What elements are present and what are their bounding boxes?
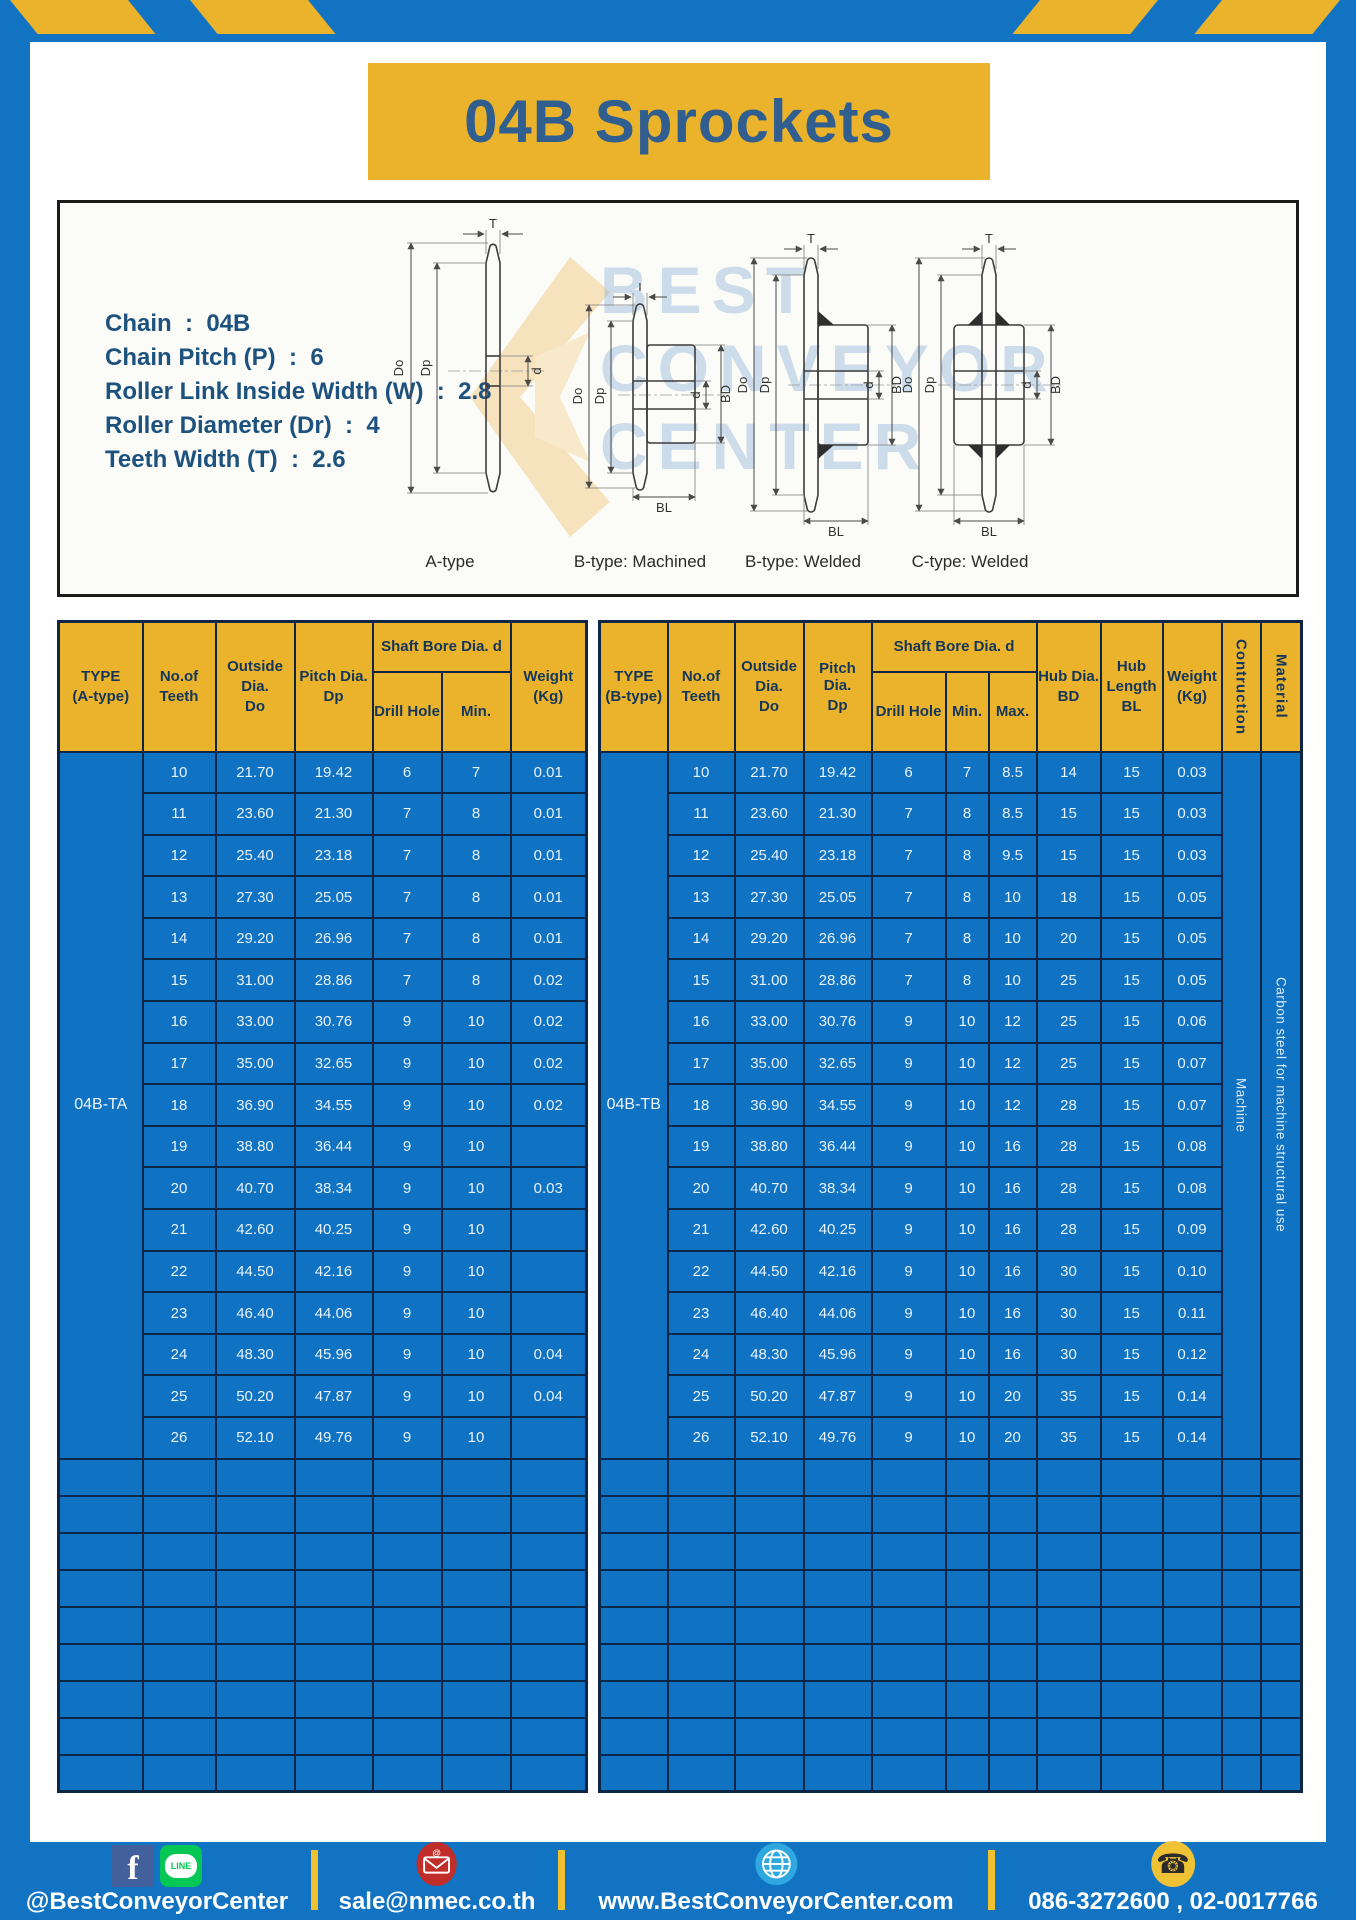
table-cell: 8 [946, 793, 989, 835]
material-value-cell: Carbon steel for machine structural use [1261, 752, 1302, 1459]
table-cell [1261, 1681, 1302, 1718]
table-cell: 9 [872, 1375, 946, 1417]
table-cell: 9 [373, 1001, 442, 1043]
table-cell [295, 1570, 373, 1607]
table-cell [946, 1496, 989, 1533]
table-cell [989, 1718, 1037, 1755]
table-cell: 16 [143, 1001, 216, 1043]
table-cell [1261, 1533, 1302, 1570]
drawing-label-b-machined: B-type: Machined [574, 552, 706, 572]
table-cell: 25.05 [804, 876, 872, 918]
table-cell: 21.30 [804, 793, 872, 835]
table-cell: 10 [442, 1043, 511, 1085]
table-cell: 6 [373, 752, 442, 794]
table-cell [442, 1681, 511, 1718]
table-cell [216, 1718, 295, 1755]
table-cell [1101, 1718, 1163, 1755]
table-cell [511, 1570, 587, 1607]
table-cell [373, 1755, 442, 1792]
table-cell [1261, 1607, 1302, 1644]
empty-row [59, 1644, 587, 1681]
header-shaft-bore: Shaft Bore Dia. d [373, 622, 511, 672]
table-cell: 8 [442, 793, 511, 835]
table-cell: 8.5 [989, 793, 1037, 835]
table-cell [872, 1755, 946, 1792]
table-cell: 0.07 [1163, 1084, 1222, 1126]
sprocket-drawing-a-type: T Do Dp d [393, 218, 563, 518]
table-cell [804, 1644, 872, 1681]
table-cell: 0.03 [1163, 793, 1222, 835]
table-cell: 34.55 [804, 1084, 872, 1126]
table-row: 2346.4044.069101630150.11 [600, 1292, 1302, 1334]
table-cell: 7 [373, 959, 442, 1001]
table-cell: 0.04 [511, 1334, 587, 1376]
table-cell [1222, 1570, 1261, 1607]
header-pitch-dia: Pitch Dia.Dp [804, 622, 872, 752]
table-cell: 36.90 [735, 1084, 804, 1126]
table-cell: 8.5 [989, 752, 1037, 794]
table-cell [989, 1496, 1037, 1533]
table-cell: 10 [946, 1209, 989, 1251]
footer-email: @ sale@nmec.co.th [339, 1841, 536, 1916]
table-cell: 10 [946, 1417, 989, 1459]
svg-text:BL: BL [828, 524, 844, 538]
construction-value-cell: Machine [1222, 752, 1261, 1459]
table-cell: 15 [1101, 1001, 1163, 1043]
header-teeth: No.ofTeeth [668, 622, 735, 752]
table-cell: 30.76 [295, 1001, 373, 1043]
table-cell: 16 [989, 1251, 1037, 1293]
table-cell: 42.16 [295, 1251, 373, 1293]
table-cell: 38.80 [216, 1126, 295, 1168]
table-cell [1261, 1496, 1302, 1533]
table-cell: 35 [1037, 1375, 1101, 1417]
table-cell [442, 1496, 511, 1533]
footer-website-text: www.BestConveyorCenter.com [598, 1888, 953, 1916]
table-cell [1222, 1607, 1261, 1644]
table-cell: 9 [872, 1001, 946, 1043]
table-cell: 46.40 [216, 1292, 295, 1334]
table-cell [946, 1570, 989, 1607]
table-cell [946, 1681, 989, 1718]
table-cell: 23 [143, 1292, 216, 1334]
table-cell: 19 [143, 1126, 216, 1168]
table-cell: 16 [989, 1334, 1037, 1376]
corner-stripe [1012, 0, 1158, 34]
table-cell: 10 [442, 1417, 511, 1459]
table-cell [373, 1496, 442, 1533]
table-cell: 7 [442, 752, 511, 794]
table-cell: 7 [872, 835, 946, 877]
table-cell: 16 [989, 1292, 1037, 1334]
footer-phone: ☎ 086-3272600 , 02-0017766 [1028, 1841, 1318, 1916]
table-cell [735, 1570, 804, 1607]
table-cell [872, 1459, 946, 1496]
table-cell: 0.03 [511, 1167, 587, 1209]
table-cell [295, 1644, 373, 1681]
table-cell: 38.34 [295, 1167, 373, 1209]
svg-text:BD: BD [718, 385, 733, 403]
table-cell: 35.00 [735, 1043, 804, 1085]
empty-row [600, 1533, 1302, 1570]
table-cell: 44.50 [216, 1251, 295, 1293]
table-cell [600, 1607, 668, 1644]
table-cell: 10 [946, 1001, 989, 1043]
table-cell [373, 1718, 442, 1755]
table-cell [59, 1533, 143, 1570]
table-cell: 10 [989, 959, 1037, 1001]
table-cell: 10 [442, 1334, 511, 1376]
table-cell: 21.70 [735, 752, 804, 794]
drawing-label-b-welded: B-type: Welded [745, 552, 861, 572]
table-cell [442, 1570, 511, 1607]
table-cell [143, 1718, 216, 1755]
table-cell [989, 1644, 1037, 1681]
table-cell: 28 [1037, 1209, 1101, 1251]
table-cell: 0.09 [1163, 1209, 1222, 1251]
table-cell: 9 [373, 1084, 442, 1126]
svg-text:BL: BL [981, 524, 997, 538]
header-material: Material [1261, 622, 1302, 752]
table-cell [1037, 1533, 1101, 1570]
table-cell [1163, 1681, 1222, 1718]
table-cell: 15 [1101, 1251, 1163, 1293]
table-row: 1938.8036.449101628150.08 [600, 1126, 1302, 1168]
table-cell [989, 1681, 1037, 1718]
mail-icon: @ [414, 1841, 460, 1887]
table-cell: 7 [373, 835, 442, 877]
table-cell [872, 1718, 946, 1755]
table-cell [668, 1496, 735, 1533]
table-cell [804, 1570, 872, 1607]
table-cell: 45.96 [295, 1334, 373, 1376]
table-cell: 15 [1101, 1209, 1163, 1251]
table-cell: 14 [1037, 752, 1101, 794]
table-cell: 33.00 [216, 1001, 295, 1043]
table-cell: 27.30 [735, 876, 804, 918]
table-cell: 8 [442, 876, 511, 918]
table-cell [1261, 1718, 1302, 1755]
table-cell [872, 1570, 946, 1607]
table-cell: 40.70 [735, 1167, 804, 1209]
table-cell [59, 1755, 143, 1792]
table-cell: 40.25 [804, 1209, 872, 1251]
table-cell [216, 1681, 295, 1718]
svg-text:BD: BD [1048, 376, 1063, 394]
table-cell [442, 1755, 511, 1792]
table-cell: 24 [668, 1334, 735, 1376]
table-cell [1101, 1570, 1163, 1607]
table-cell [373, 1570, 442, 1607]
table-cell [59, 1570, 143, 1607]
table-cell [1101, 1607, 1163, 1644]
table-cell: 12 [143, 835, 216, 877]
table-cell: 49.76 [804, 1417, 872, 1459]
table-cell: 12 [989, 1001, 1037, 1043]
header-type: TYPE(A-type) [59, 622, 143, 752]
table-cell: 52.10 [216, 1417, 295, 1459]
table-cell: 23.18 [295, 835, 373, 877]
table-cell [1222, 1755, 1261, 1792]
table-cell: 9 [373, 1375, 442, 1417]
table-cell: 24 [143, 1334, 216, 1376]
table-cell: 15 [143, 959, 216, 1001]
table-cell [735, 1533, 804, 1570]
table-cell: 23.18 [804, 835, 872, 877]
table-cell [946, 1644, 989, 1681]
header-outside-dia: OutsideDia.Do [216, 622, 295, 752]
table-cell: 16 [989, 1209, 1037, 1251]
table-cell: 31.00 [216, 959, 295, 1001]
table-cell [735, 1459, 804, 1496]
table-cell: 9 [872, 1084, 946, 1126]
table-cell: 42.60 [735, 1209, 804, 1251]
table-cell [511, 1718, 587, 1755]
table-cell: 15 [1101, 959, 1163, 1001]
table-cell: 7 [373, 876, 442, 918]
table-cell [804, 1718, 872, 1755]
table-cell [668, 1718, 735, 1755]
table-cell [143, 1459, 216, 1496]
table-cell [600, 1755, 668, 1792]
table-cell: 10 [442, 1001, 511, 1043]
drawing-label-a-type: A-type [425, 552, 474, 572]
table-cell: 15 [1037, 793, 1101, 835]
table-row: 2244.5042.169101630150.10 [600, 1251, 1302, 1293]
table-cell: 9 [373, 1043, 442, 1085]
table-row: 2142.6040.259101628150.09 [600, 1209, 1302, 1251]
table-cell [1163, 1755, 1222, 1792]
table-cell [1163, 1570, 1222, 1607]
table-cell [600, 1496, 668, 1533]
table-cell: 35 [1037, 1417, 1101, 1459]
table-row: 1633.0030.769101225150.06 [600, 1001, 1302, 1043]
table-cell: 50.20 [735, 1375, 804, 1417]
empty-row [59, 1496, 587, 1533]
table-cell: 20 [1037, 918, 1101, 960]
svg-text:d: d [688, 391, 703, 398]
table-cell: 32.65 [804, 1043, 872, 1085]
corner-stripe [10, 0, 156, 34]
table-cell [1163, 1607, 1222, 1644]
table-cell: 34.55 [295, 1084, 373, 1126]
table-cell: 16 [989, 1167, 1037, 1209]
table-cell [511, 1459, 587, 1496]
table-cell: 44.06 [295, 1292, 373, 1334]
table-cell: 38.80 [735, 1126, 804, 1168]
table-cell: 15 [1101, 1167, 1163, 1209]
empty-row [59, 1607, 587, 1644]
table-cell: 18 [1037, 876, 1101, 918]
line-icon: LINE [160, 1845, 202, 1887]
drawing-label-c-welded: C-type: Welded [912, 552, 1029, 572]
table-cell: 10 [442, 1084, 511, 1126]
table-cell: 9 [872, 1417, 946, 1459]
table-cell: 20 [668, 1167, 735, 1209]
table-cell [989, 1607, 1037, 1644]
table-cell: 19 [668, 1126, 735, 1168]
header-weight: Weight(Kg) [1163, 622, 1222, 752]
svg-text:Dp: Dp [922, 377, 937, 394]
table-cell: 16 [668, 1001, 735, 1043]
table-cell [668, 1607, 735, 1644]
table-cell: 10 [442, 1126, 511, 1168]
table-cell: 10 [668, 752, 735, 794]
table-row: 1327.3025.05781018150.05 [600, 876, 1302, 918]
table-row: 1225.4023.18789.515150.03 [600, 835, 1302, 877]
table-cell: 28 [1037, 1084, 1101, 1126]
table-cell [668, 1681, 735, 1718]
table-cell: 6 [872, 752, 946, 794]
table-cell: 19.42 [295, 752, 373, 794]
table-cell: 14 [668, 918, 735, 960]
table-cell: 30 [1037, 1292, 1101, 1334]
table-cell [216, 1459, 295, 1496]
empty-row [600, 1755, 1302, 1792]
table-cell: 10 [442, 1209, 511, 1251]
table-cell [989, 1755, 1037, 1792]
table-cell [735, 1718, 804, 1755]
table-cell: 18 [143, 1084, 216, 1126]
table-cell: 10 [989, 918, 1037, 960]
content-sheet: 04B Sprockets BEST CONVEYOR CENTER Chain… [30, 42, 1326, 1842]
table-cell: 9 [872, 1334, 946, 1376]
table-cell [1222, 1496, 1261, 1533]
table-cell: 36.90 [216, 1084, 295, 1126]
empty-row [600, 1718, 1302, 1755]
table-cell [804, 1755, 872, 1792]
table-cell: 22 [668, 1251, 735, 1293]
table-cell: 14 [143, 918, 216, 960]
table-cell [373, 1681, 442, 1718]
table-cell [511, 1681, 587, 1718]
table-cell: 10 [989, 876, 1037, 918]
table-cell [668, 1644, 735, 1681]
header-teeth: No.ofTeeth [143, 622, 216, 752]
table-cell [1101, 1755, 1163, 1792]
table-cell [442, 1533, 511, 1570]
table-cell [1037, 1570, 1101, 1607]
table-cell: 28 [1037, 1167, 1101, 1209]
table-cell: 15 [1101, 793, 1163, 835]
table-cell: 42.16 [804, 1251, 872, 1293]
catalog-page: 04B Sprockets BEST CONVEYOR CENTER Chain… [0, 0, 1356, 1920]
footer-social: f LINE @BestConveyorCenter [26, 1845, 288, 1916]
table-cell: 10 [442, 1292, 511, 1334]
header-type: TYPE(B-type) [600, 622, 668, 752]
table-cell: 50.20 [216, 1375, 295, 1417]
table-cell: 21 [668, 1209, 735, 1251]
table-cell: 13 [668, 876, 735, 918]
table-cell [1101, 1459, 1163, 1496]
table-cell [295, 1496, 373, 1533]
table-cell [511, 1755, 587, 1792]
svg-text:Do: Do [738, 377, 750, 394]
table-cell: 15 [1101, 835, 1163, 877]
table-cell [804, 1533, 872, 1570]
sprocket-table-a-type: TYPE(A-type) No.ofTeeth OutsideDia.Do Pi… [57, 620, 588, 1793]
table-cell [1101, 1644, 1163, 1681]
table-cell: 8 [946, 876, 989, 918]
table-cell: 27.30 [216, 876, 295, 918]
header-hub-dia: Hub Dia.BD [1037, 622, 1101, 752]
empty-row [59, 1459, 587, 1496]
table-cell: 7 [373, 918, 442, 960]
table-cell: 0.08 [1163, 1167, 1222, 1209]
header-drill-hole: Drill Hole [872, 672, 946, 752]
table-cell [989, 1459, 1037, 1496]
table-cell: 0.02 [511, 1001, 587, 1043]
table-cell: 9.5 [989, 835, 1037, 877]
table-cell [600, 1570, 668, 1607]
table-cell: 9 [373, 1167, 442, 1209]
table-cell: 10 [946, 1375, 989, 1417]
table-cell [735, 1496, 804, 1533]
svg-text:Dp: Dp [418, 360, 433, 377]
header-min: Min. [442, 672, 511, 752]
table-cell: 31.00 [735, 959, 804, 1001]
table-row: 1836.9034.559101228150.07 [600, 1084, 1302, 1126]
table-cell: 0.05 [1163, 918, 1222, 960]
table-cell: 0.11 [1163, 1292, 1222, 1334]
table-cell: 8 [442, 835, 511, 877]
sprocket-drawing-b-type-welded: T Do Dp d BD BL [738, 233, 903, 538]
svg-text:Do: Do [903, 377, 915, 394]
empty-row [600, 1644, 1302, 1681]
table-cell: 23.60 [735, 793, 804, 835]
table-cell [295, 1607, 373, 1644]
table-cell: 9 [872, 1209, 946, 1251]
table-row: 2040.7038.349101628150.08 [600, 1167, 1302, 1209]
table-cell: 28.86 [804, 959, 872, 1001]
svg-text:T: T [636, 283, 644, 294]
header-outside-dia: OutsideDia.Do [735, 622, 804, 752]
table-cell [1222, 1644, 1261, 1681]
table-cell [143, 1496, 216, 1533]
footer-phone-text: 086-3272600 , 02-0017766 [1028, 1888, 1318, 1916]
table-cell [1163, 1496, 1222, 1533]
table-cell: 20 [143, 1167, 216, 1209]
empty-row [600, 1607, 1302, 1644]
table-cell: 25 [668, 1375, 735, 1417]
table-cell: 30 [1037, 1251, 1101, 1293]
table-cell: 36.44 [295, 1126, 373, 1168]
table-cell [735, 1755, 804, 1792]
table-cell [872, 1607, 946, 1644]
table-cell [511, 1533, 587, 1570]
table-cell: 28.86 [295, 959, 373, 1001]
table-cell [373, 1644, 442, 1681]
empty-row [600, 1459, 1302, 1496]
table-cell: 0.01 [511, 876, 587, 918]
title-banner: 04B Sprockets [368, 63, 990, 180]
table-cell [1261, 1459, 1302, 1496]
table-cell [295, 1681, 373, 1718]
type-value-cell: 04B-TB [600, 752, 668, 1459]
empty-row [59, 1718, 587, 1755]
table-cell: 40.25 [295, 1209, 373, 1251]
table-cell [59, 1607, 143, 1644]
table-cell [511, 1644, 587, 1681]
table-cell: 9 [373, 1209, 442, 1251]
table-cell [989, 1533, 1037, 1570]
table-cell [946, 1718, 989, 1755]
footer-website: www.BestConveyorCenter.com [598, 1841, 953, 1916]
table-cell: 15 [1101, 876, 1163, 918]
footer-divider [558, 1850, 565, 1910]
table-cell: 0.03 [1163, 835, 1222, 877]
empty-row [600, 1681, 1302, 1718]
